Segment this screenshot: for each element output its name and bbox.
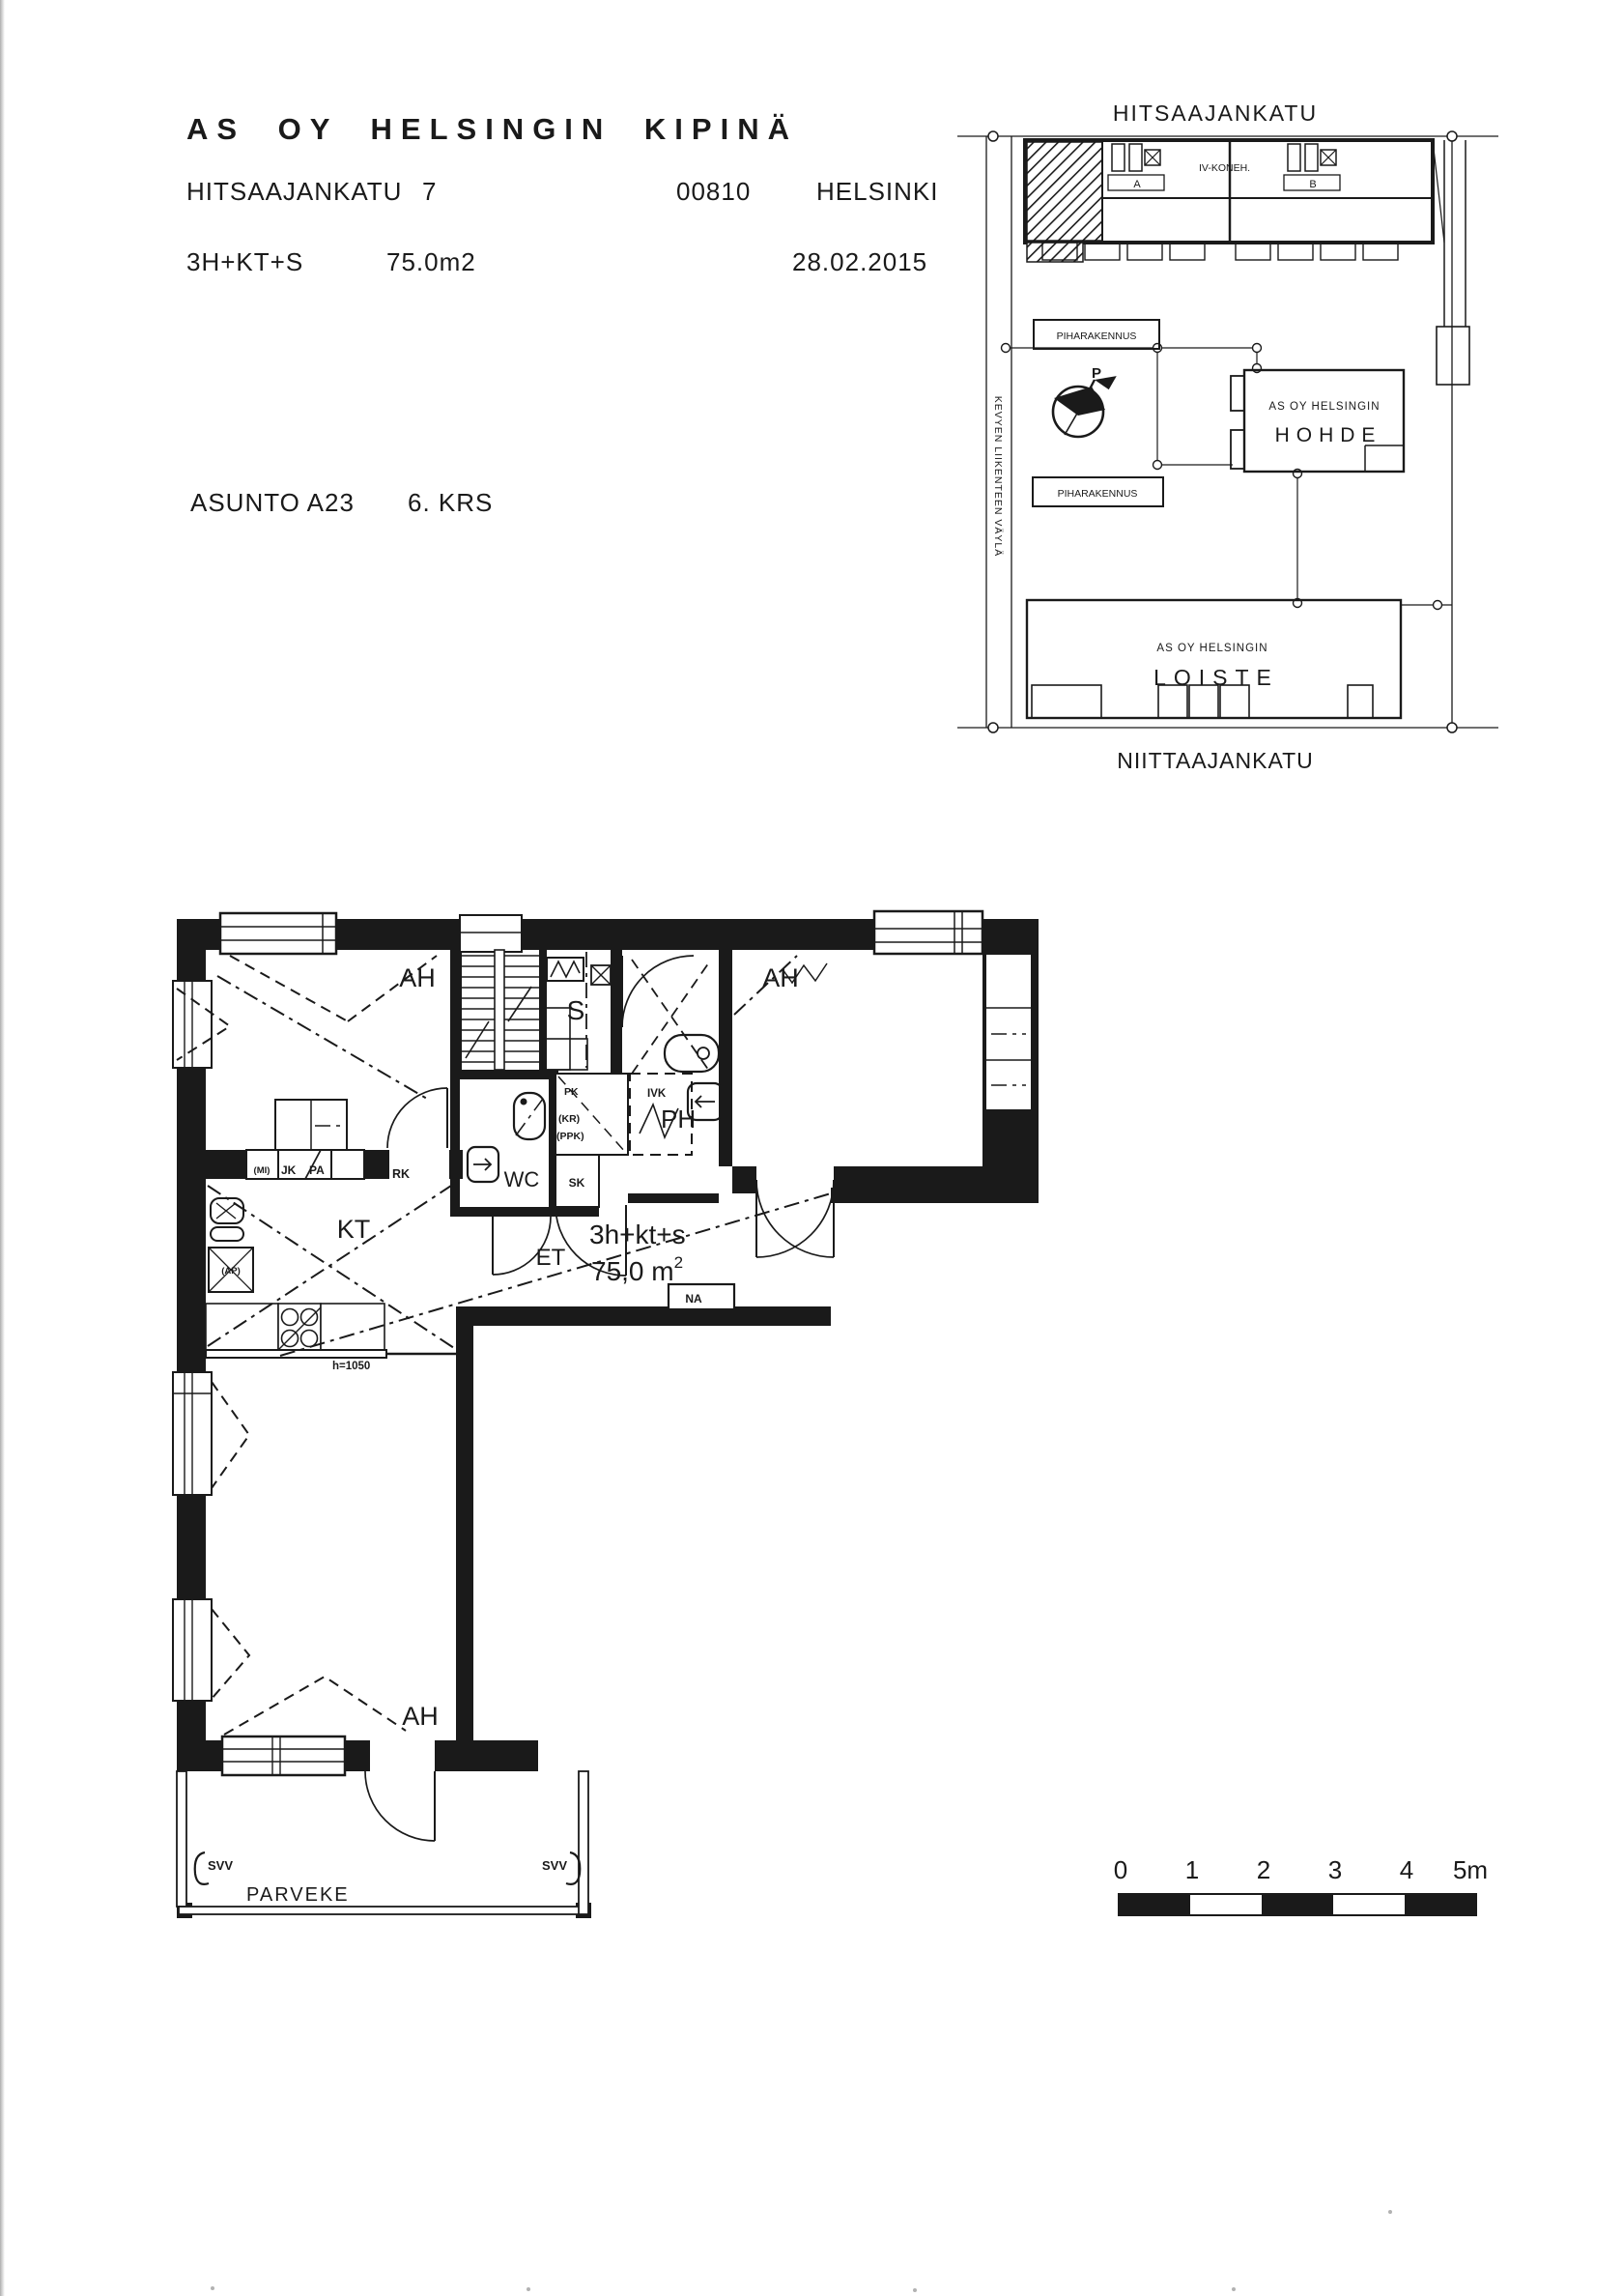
svg-text:PA: PA — [309, 1163, 325, 1177]
scan-dot — [1232, 2287, 1236, 2291]
window-ah1-left — [173, 981, 212, 1068]
svg-text:(AP): (AP) — [221, 1266, 241, 1277]
window-ah3-bottom — [222, 1736, 345, 1775]
svg-text:PK: PK — [564, 1086, 579, 1098]
svg-text:5m: 5m — [1453, 1855, 1488, 1884]
loiste-prefix: AS OY HELSINGIN — [1156, 643, 1267, 654]
apartment-area-label: 75,0 m2 — [591, 1253, 683, 1286]
na-recess: NA — [669, 1284, 734, 1309]
hohde-name: HOHDE — [1275, 424, 1382, 446]
svv-right: SVV — [542, 1858, 567, 1873]
window-ah3-left-1 — [173, 1372, 212, 1495]
window-ah3-left-2 — [173, 1599, 212, 1701]
city: HELSINKI — [816, 177, 939, 207]
ap-box: (AP) — [209, 1248, 253, 1292]
door-sauna — [622, 956, 694, 1027]
closet-sk: SK — [555, 1155, 599, 1207]
window-ah2-top — [874, 911, 982, 954]
svg-text:SK: SK — [569, 1176, 585, 1190]
wc-sink-icon — [468, 1147, 498, 1182]
floor-plan: (MI) JK PA RK SK PK (KR) (PPK) — [164, 894, 1045, 1926]
site-lane-label: KEVYEN LIIKENTEEN VÄYLÄ — [992, 396, 1004, 558]
street-number: 7 — [422, 177, 437, 207]
svv-left: SVV — [208, 1858, 233, 1873]
hohde-prefix: AS OY HELSINGIN — [1268, 401, 1380, 413]
stove-icon — [278, 1304, 321, 1352]
kipina-right-annex — [1433, 140, 1469, 385]
cabinet-plain — [331, 1150, 364, 1179]
window-stairwell — [460, 915, 522, 952]
apartment-id: ASUNTO A23 — [190, 488, 355, 518]
balcony-label: PARVEKE — [246, 1884, 350, 1906]
svg-text:0: 0 — [1114, 1855, 1127, 1884]
outbuilding-1: PIHARAKENNUS — [1034, 320, 1159, 349]
utility-closet: PK (KR) (PPK) — [555, 1074, 628, 1155]
door-balcony — [365, 1771, 435, 1841]
room-sauna: S — [567, 995, 585, 1025]
site-plan: HITSAAJANKATU KEVYEN LIIKENTEEN VÄYLÄ — [950, 90, 1508, 781]
counter — [206, 1304, 278, 1352]
room-wc: WC — [504, 1167, 540, 1191]
street-name: HITSAAJANKATU — [186, 177, 402, 207]
half-wall-h1050: h=1050 — [206, 1350, 470, 1372]
toilet-icon — [665, 1035, 719, 1072]
scan-dot — [527, 2287, 530, 2291]
svg-text:1: 1 — [1185, 1855, 1199, 1884]
balcony: SVV SVV PARVEKE — [177, 1771, 588, 1914]
svg-text:(PPK): (PPK) — [556, 1131, 584, 1142]
svg-text:4: 4 — [1400, 1855, 1413, 1884]
postal-code: 00810 — [676, 177, 751, 207]
svg-text:3: 3 — [1328, 1855, 1342, 1884]
scale-ticks: 0 1 2 3 4 5m — [1114, 1855, 1488, 1884]
stair-core-b: B — [1284, 144, 1340, 190]
compass-icon: P — [1053, 365, 1117, 437]
sauna-stove-icon — [591, 965, 611, 985]
rk-label: RK — [392, 1167, 410, 1181]
loiste-name: LOISTE — [1153, 665, 1279, 690]
kitchen-sink-icon — [211, 1198, 243, 1241]
outbuilding-2: PIHARAKENNUS — [1033, 477, 1163, 506]
cabinet-mi: (MI) — [246, 1150, 278, 1179]
kipina-balconies — [1042, 243, 1398, 260]
room-ah3: AH — [402, 1702, 439, 1731]
compass-p-label: P — [1092, 365, 1101, 382]
document-date: 28.02.2015 — [792, 247, 927, 277]
scan-dot — [913, 2288, 917, 2292]
svg-text:h=1050: h=1050 — [332, 1361, 370, 1372]
wardrobe-ah1 — [275, 1100, 347, 1150]
svg-text:JK: JK — [281, 1163, 297, 1177]
electrical-panel — [547, 958, 584, 981]
apartment-floor: 6. KRS — [408, 488, 493, 518]
room-kt: KT — [337, 1215, 371, 1244]
scale-ruler — [1119, 1894, 1476, 1915]
window-ah1-top — [220, 913, 336, 954]
svg-text:IVK: IVK — [647, 1088, 667, 1100]
apartment-type: 3H+KT+S — [186, 247, 303, 277]
stair-a-label: A — [1133, 179, 1141, 190]
site-building-hohde: AS OY HELSINGIN HOHDE — [1231, 370, 1404, 472]
svg-text:(KR): (KR) — [558, 1113, 580, 1125]
svg-text:NA: NA — [685, 1292, 702, 1306]
scan-dot — [1388, 2210, 1392, 2214]
apartment-type-label: 3h+kt+s — [589, 1220, 686, 1249]
room-ah1: AH — [399, 963, 436, 992]
svg-text:PIHARAKENNUS: PIHARAKENNUS — [1057, 330, 1137, 342]
site-building-loiste: AS OY HELSINGIN LOISTE — [1027, 600, 1401, 718]
stair-core-a: A — [1108, 144, 1164, 190]
svg-text:PIHARAKENNUS: PIHARAKENNUS — [1058, 488, 1138, 500]
site-street-bottom: NIITTAAJANKATU — [1117, 748, 1314, 773]
floorplan-document-page: AS OY HELSINGIN KIPINÄ HITSAAJANKATU 7 0… — [0, 0, 1623, 2296]
svv-hook-left — [195, 1852, 209, 1884]
document-title: AS OY HELSINGIN KIPINÄ — [186, 112, 798, 147]
scale-bar: 0 1 2 3 4 5m — [1111, 1853, 1482, 1927]
stair-b-label: B — [1309, 179, 1316, 190]
svg-text:(MI): (MI) — [254, 1165, 270, 1176]
closet-ah2 — [985, 954, 1032, 1110]
scan-dot — [211, 2286, 214, 2290]
site-street-top: HITSAAJANKATU — [1113, 100, 1318, 126]
scan-edge-shadow — [0, 0, 5, 2296]
room-ah2: AH — [762, 963, 799, 992]
door-ah2-fan — [756, 1180, 834, 1257]
stairwell — [462, 950, 539, 1070]
cabinet-jk-pa: JK PA — [278, 1150, 331, 1179]
room-ph: PH — [661, 1105, 696, 1134]
iv-room-label: IV-KONEH. — [1199, 162, 1250, 174]
room-et: ET — [536, 1245, 566, 1271]
door-ah1 — [387, 1088, 447, 1148]
svg-text:2: 2 — [1257, 1855, 1270, 1884]
apartment-location-hatch — [1027, 142, 1102, 241]
water-heater-icon — [514, 1093, 545, 1139]
apartment-area: 75.0m2 — [386, 247, 476, 277]
